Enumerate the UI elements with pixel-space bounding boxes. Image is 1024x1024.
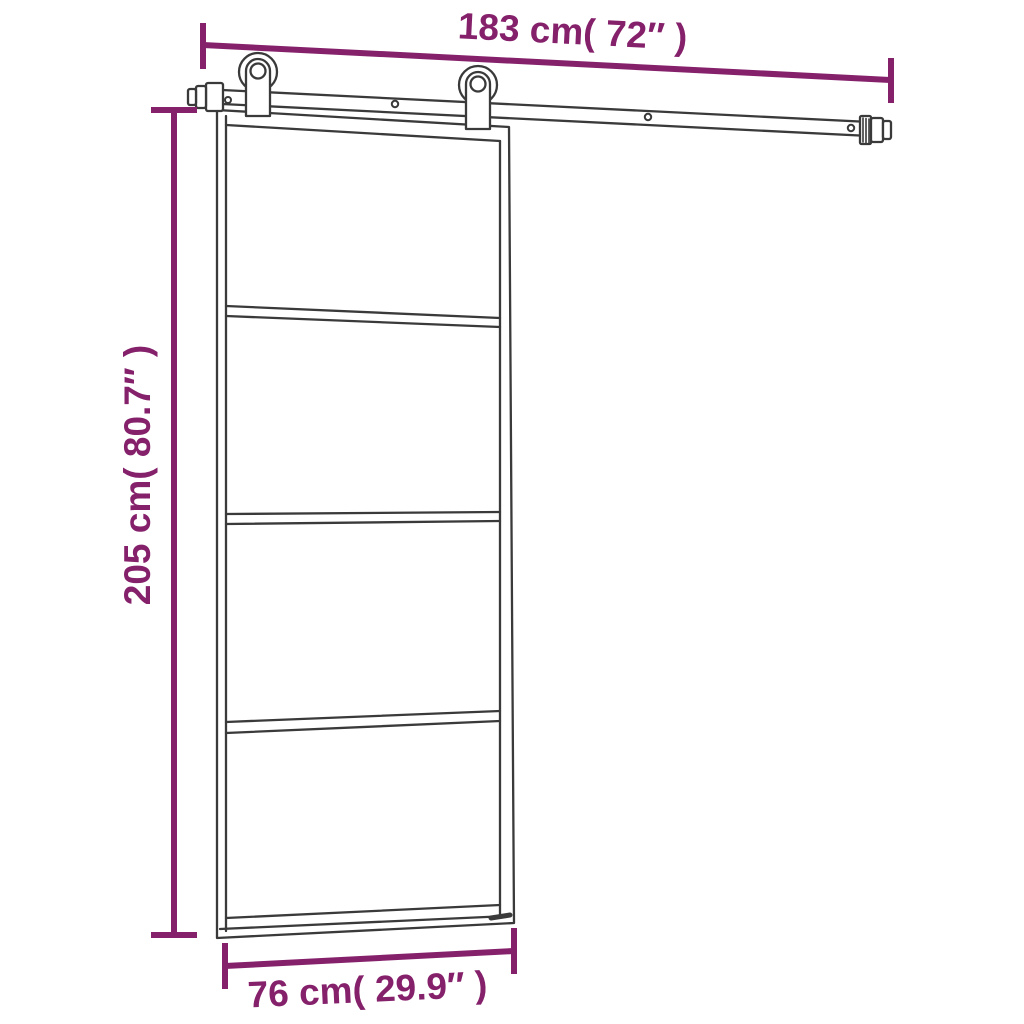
end-stop-left-main (206, 83, 223, 111)
dimension-door-width-label: 76 cm( 29.9″ ) (247, 964, 488, 1016)
end-stop-right-tip (883, 121, 891, 139)
rail-screw-hole-left (225, 97, 231, 103)
door-floor-guide (491, 915, 510, 918)
roller-right (459, 66, 497, 129)
diagram-canvas: 183 cm( 72″ ) 205 cm( 80.7″ ) 76 cm( 29.… (0, 0, 1024, 1024)
dimension-track-length-label: 183 cm( 72″ ) (457, 5, 688, 58)
end-stop-left-tip (188, 89, 196, 105)
dimension-door-height: 205 cm( 80.7″ ) (117, 110, 197, 935)
sliding-door-diagram: 183 cm( 72″ ) 205 cm( 80.7″ ) 76 cm( 29.… (0, 0, 1024, 1024)
dimension-track-length: 183 cm( 72″ ) (203, 5, 891, 103)
dimension-door-height-label: 205 cm( 80.7″ ) (117, 345, 158, 605)
door-panel (217, 110, 514, 938)
roller-left-hub-bolt (251, 64, 266, 79)
dimension-door-width: 76 cm( 29.9″ ) (225, 928, 514, 1015)
roller-right-hub-bolt (471, 77, 486, 92)
end-stop-left-mid (196, 86, 206, 108)
end-stop-right-main (871, 118, 883, 142)
line-art (188, 53, 891, 938)
rail-screw-hole-2 (645, 114, 651, 120)
rail-screw-hole-1 (392, 101, 398, 107)
rail-end-stop-right (860, 116, 891, 144)
rail-screw-hole-3 (848, 125, 854, 131)
